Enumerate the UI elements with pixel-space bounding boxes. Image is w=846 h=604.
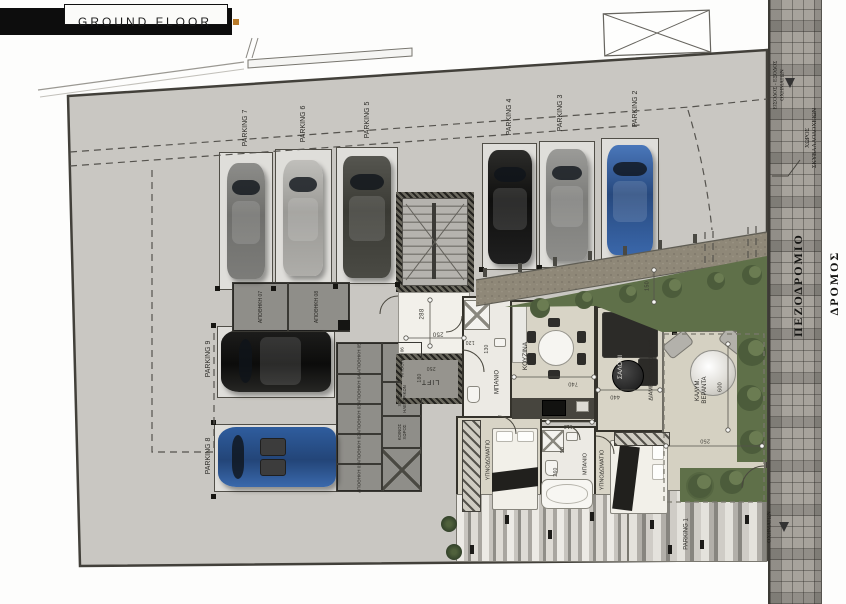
lift-width-dim: 250	[426, 365, 435, 371]
stair-depth-dim: 288	[419, 309, 426, 320]
bins-leader-line	[772, 160, 800, 176]
page-title: GROUND FLOOR	[78, 15, 212, 29]
storage-03-label: ΑΠΟΘΗΚΗ 03	[356, 404, 362, 434]
road-label: ΔΡΟΜΟΣ	[827, 251, 841, 316]
garbage-area-label: ΧΩΡΟΣ ΣΚΥΒΑΛΛΟΔΟΧΕΙΩΝ	[805, 108, 819, 168]
veranda-depth-dim: 250	[700, 437, 710, 444]
veranda-len-dim: 600	[718, 382, 725, 392]
bathroom-2-label: ΜΠΑΝΙΟ	[583, 453, 590, 475]
hall-dim-a: 120	[465, 339, 474, 345]
lift-depth-dim: 180	[417, 373, 423, 382]
annotation-layer	[0, 0, 846, 604]
common-room-label: ΚΟΙΝΟΣ ΧΩΡΟΣ	[397, 424, 407, 440]
kitchen-label: ΚΟΥΖΙΝΑ	[522, 342, 530, 370]
entrance-arrow-2-icon	[779, 522, 789, 532]
storage-05-label: ΑΠΟΘΗΚΗ 05	[356, 343, 362, 373]
sidewalk-label: ΠΕΖΟΔΡΟΜΙΟ	[791, 233, 805, 337]
stair-direction-lines	[406, 204, 464, 280]
parking-1-label: PARKING 1	[683, 518, 690, 550]
lift-label: LIFT	[421, 377, 439, 385]
bath2-w-dim: 90	[560, 447, 566, 453]
living-dim: 440	[610, 393, 620, 400]
storage-07-label: ΑΠΟΘΗΚΗ 07	[258, 291, 264, 323]
vehicle-entrance-2-label: ΟΧΗΜΑΤΩΝ	[767, 511, 774, 543]
veranda-label: ΚΑΛΥΜ. ΒΕΡΑΝΤΑ	[695, 376, 709, 403]
parking-2-label: PARKING 2	[632, 91, 640, 128]
parking-6-label: PARKING 6	[300, 106, 308, 143]
bathroom-1-label: ΜΠΑΝΙΟ	[494, 370, 501, 394]
storage-01-label: ΑΠΟΘΗΚΗ 01	[356, 463, 362, 493]
vehicle-entrance-label: ΕΙΣΟΔΟΣ - ΕΞΟΔΟΣ ΟΧΗΜΑΤΩΝ	[772, 61, 785, 110]
bedroom-1-label: ΥΠΝΟΔΩΜΑΤΙΟ	[486, 440, 493, 481]
kitchen-dim: 740	[568, 380, 578, 387]
storage-02-label: ΑΠΟΘΗΚΗ 02	[356, 434, 362, 464]
electrical-room-label: ΧΩΡΟΣ ΗΛΕΚΤΡΙΚΩΝ	[397, 385, 407, 413]
bath2-len-dim: 260	[553, 467, 559, 476]
hall-dim-b: 130	[484, 344, 490, 353]
parking-7-label: PARKING 7	[242, 110, 250, 147]
parking-3-label: PARKING 3	[557, 95, 565, 132]
drive-width-dim: 150	[645, 281, 652, 291]
title-accent-square	[233, 19, 239, 25]
storage-04-label: ΑΠΟΘΗΚΗ 04	[356, 374, 362, 404]
living-room-label: ΣΑΛΟΝΙ	[617, 355, 625, 379]
storage-06-label: ΑΠΟΘΗΚΗ 06	[399, 347, 405, 377]
bedroom-2-label: ΥΠΝΟΔΩΜΑΤΙΟ	[600, 450, 607, 491]
entrance-arrow-icon	[785, 78, 795, 88]
parking-9-label: PARKING 9	[205, 341, 213, 378]
floor-plan: GROUND FLOOR	[0, 0, 846, 604]
bath2-door-dim: 110	[564, 423, 573, 429]
storage-08-label: ΑΠΟΘΗΚΗ 08	[314, 291, 320, 323]
parking-4-label: PARKING 4	[506, 99, 514, 136]
stair-width-dim: 250	[433, 329, 444, 336]
unit-label: ΔΙΑΜΕΡΙΣΜΑ 001 79 M2	[649, 339, 656, 400]
parking-8-label: PARKING 8	[205, 438, 213, 475]
parking-5-label: PARKING 5	[364, 102, 372, 139]
